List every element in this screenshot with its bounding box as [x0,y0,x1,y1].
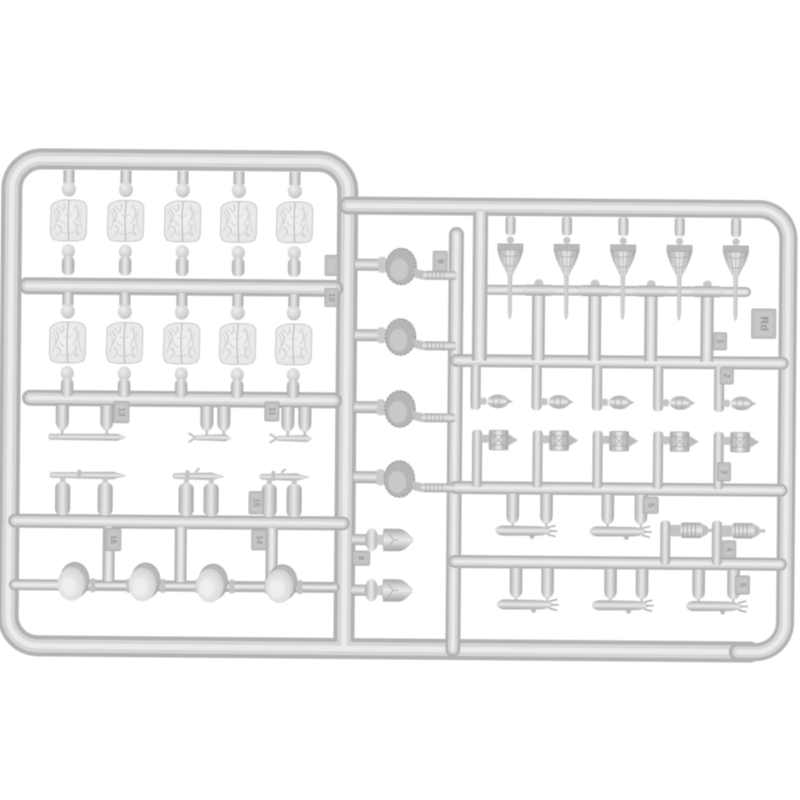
svg-text:13: 13 [117,408,126,418]
svg-text:4: 4 [725,547,734,552]
svg-text:3: 3 [719,470,728,475]
svg-text:8: 8 [357,556,366,561]
svg-text:1: 1 [716,339,725,344]
svg-text:16: 16 [109,535,118,545]
svg-text:11: 11 [267,407,276,416]
svg-text:Rd: Rd [758,316,770,331]
svg-text:15: 15 [252,498,261,508]
svg-text:5: 5 [738,583,747,588]
svg-text:14: 14 [255,535,264,545]
svg-text:10: 10 [327,293,336,303]
svg-text:5: 5 [646,503,655,508]
svg-text:2: 2 [722,374,731,379]
svg-text:9: 9 [436,259,445,264]
